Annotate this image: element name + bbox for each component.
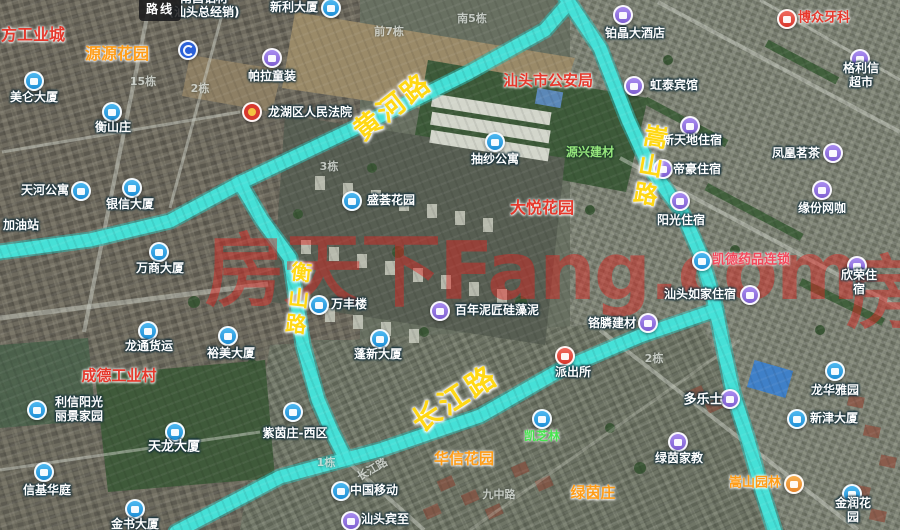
purple-poi-icon[interactable]: [720, 389, 740, 409]
poi-label[interactable]: 新利大厦: [270, 1, 318, 15]
poi-label[interactable]: 汕头如家住宿: [664, 288, 736, 302]
purple-poi-icon[interactable]: [430, 301, 450, 321]
poi-label[interactable]: 华信花园: [434, 450, 494, 467]
poi-label[interactable]: 中国移动: [350, 484, 398, 498]
blue-poi-icon[interactable]: [125, 499, 145, 519]
blue-poi-icon[interactable]: [71, 181, 91, 201]
poi-label[interactable]: 铬膦建材: [588, 317, 636, 331]
poi-label[interactable]: 凯芝林: [524, 430, 560, 444]
poi-label[interactable]: 抽纱公寓: [471, 153, 519, 167]
poi-label[interactable]: 蓬新大厦: [354, 348, 402, 362]
poi-label[interactable]: 金书大厦: [111, 518, 159, 530]
poi-label[interactable]: 多乐士: [683, 394, 722, 409]
poi-label[interactable]: 新津大厦: [810, 412, 858, 426]
purple-poi-icon[interactable]: [341, 511, 361, 530]
poi-label[interactable]: 龙华雅园: [811, 384, 859, 398]
poi-label[interactable]: 盛荟花园: [367, 194, 415, 208]
purple-poi-icon[interactable]: [670, 191, 690, 211]
poi-label[interactable]: 帕拉童装: [248, 70, 296, 84]
purple-poi-icon[interactable]: [740, 285, 760, 305]
dental-clinic-icon[interactable]: [777, 9, 797, 29]
blue-poi-icon[interactable]: [370, 329, 390, 349]
poi-label[interactable]: 衡山庄: [95, 121, 131, 135]
purple-poi-icon[interactable]: [812, 180, 832, 200]
blue-poi-icon[interactable]: [342, 191, 362, 211]
poi-label[interactable]: 阳光住宿: [657, 214, 705, 228]
blue-poi-icon[interactable]: [149, 242, 169, 262]
purple-poi-icon[interactable]: [638, 313, 658, 333]
poi-label[interactable]: 帝豪住宿: [673, 163, 721, 177]
basemap-label: 前7栋: [374, 23, 404, 39]
poi-label[interactable]: 汕头市公安局: [503, 72, 593, 89]
blue-poi-icon[interactable]: [283, 402, 303, 422]
blue-poi-icon[interactable]: [485, 132, 505, 152]
route-badge[interactable]: 路线: [139, 0, 181, 21]
basemap-label: 长江路: [354, 454, 391, 484]
blue-poi-icon[interactable]: [34, 462, 54, 482]
purple-poi-icon[interactable]: [668, 432, 688, 452]
poi-label[interactable]: 天河公寓: [21, 184, 69, 198]
basemap-label: 15栋: [130, 73, 156, 89]
basemap-label: 九中路: [483, 486, 516, 502]
road-label-changjiang: 长江路: [407, 361, 503, 438]
blue-poi-icon[interactable]: [122, 178, 142, 198]
poi-label[interactable]: 凤凰茗茶: [772, 147, 820, 161]
purple-poi-icon[interactable]: [624, 76, 644, 96]
poi-label[interactable]: 铂晶大酒店: [605, 27, 665, 41]
blue-poi-icon[interactable]: [787, 409, 807, 429]
poi-label[interactable]: 缘份网咖: [798, 202, 846, 216]
poi-label[interactable]: 利信阳光 丽景家园: [55, 396, 103, 424]
poi-label[interactable]: 紫茵庄-西区: [263, 427, 328, 441]
poi-label[interactable]: 龙湖区人民法院: [268, 106, 352, 120]
poi-label[interactable]: 绿茵家教: [655, 452, 703, 466]
poi-label[interactable]: 博众牙科: [798, 12, 850, 27]
poi-label[interactable]: 汕头宾至: [361, 513, 409, 527]
police-badge-icon[interactable]: [555, 346, 575, 366]
poi-label[interactable]: 加油站: [3, 219, 39, 233]
basemap-label: 1栋: [317, 454, 336, 470]
court-emblem-icon[interactable]: [242, 102, 262, 122]
blue-poi-icon[interactable]: [321, 0, 341, 18]
poi-label[interactable]: 银信大厦: [106, 198, 154, 212]
u-turn-arrow-icon[interactable]: [178, 40, 198, 60]
blue-poi-icon[interactable]: [825, 361, 845, 381]
poi-label[interactable]: 格利信超市: [842, 62, 881, 90]
basemap-label: 2栋: [645, 350, 664, 366]
poi-label[interactable]: 欣荣住宿: [839, 269, 880, 297]
basemap-label: 南5栋: [457, 10, 487, 26]
poi-label[interactable]: 龙通货运: [125, 340, 173, 354]
orange-poi-icon[interactable]: [784, 474, 804, 494]
satellite-map[interactable]: 房天下Fang.com 房 南5栋前7栋15栋2栋3栋2栋1栋长江路九中路南昌铝…: [0, 0, 900, 530]
blue-poi-icon[interactable]: [24, 71, 44, 91]
poi-label[interactable]: 大悦花园: [510, 199, 574, 217]
basemap-label: 3栋: [320, 158, 339, 174]
poi-label[interactable]: 万丰楼: [331, 298, 367, 312]
poi-label[interactable]: 成德工业村: [81, 367, 156, 384]
purple-poi-icon[interactable]: [262, 48, 282, 68]
poi-label[interactable]: 嵩山园林: [729, 477, 781, 492]
poi-label[interactable]: 派出所: [555, 366, 591, 380]
poi-label[interactable]: 美仑大厦: [10, 91, 58, 105]
road-label-huanghe: 黄河路: [349, 69, 437, 146]
road-label-hengshan: 衡山路: [282, 260, 311, 340]
poi-label[interactable]: 百年泥匠硅藻泥: [455, 304, 539, 318]
blue-poi-icon[interactable]: [27, 400, 47, 420]
poi-label[interactable]: 源兴建材: [566, 146, 614, 160]
poi-label[interactable]: 信基华庭: [23, 484, 71, 498]
poi-label[interactable]: 新天地住宿: [662, 134, 722, 148]
poi-label[interactable]: 方工业城: [1, 26, 65, 44]
blue-poi-icon[interactable]: [309, 295, 329, 315]
poi-label[interactable]: 金润花园: [830, 497, 877, 525]
poi-label[interactable]: 绿茵庄: [570, 484, 615, 501]
basemap-label: 2栋: [191, 80, 210, 96]
blue-poi-icon[interactable]: [532, 409, 552, 429]
poi-label[interactable]: 裕美大厦: [207, 347, 255, 361]
purple-poi-icon[interactable]: [823, 143, 843, 163]
poi-label[interactable]: 天龙大厦: [148, 441, 200, 456]
poi-label[interactable]: 凯德药品连锁: [712, 254, 790, 269]
poi-label[interactable]: 源源花园: [85, 45, 149, 63]
poi-label[interactable]: 万商大厦: [136, 262, 184, 276]
blue-poi-icon[interactable]: [218, 326, 238, 346]
purple-poi-icon[interactable]: [613, 5, 633, 25]
blue-poi-icon[interactable]: [138, 321, 158, 341]
road-label-songshan: 嵩山路: [629, 122, 668, 212]
blue-poi-icon[interactable]: [692, 251, 712, 271]
poi-layer: 南5栋前7栋15栋2栋3栋2栋1栋长江路九中路南昌铝材 (汕头总经销)新利大厦博…: [0, 0, 900, 530]
poi-label[interactable]: 虹泰宾馆: [650, 79, 698, 93]
blue-poi-icon[interactable]: [331, 481, 351, 501]
blue-poi-icon[interactable]: [102, 102, 122, 122]
